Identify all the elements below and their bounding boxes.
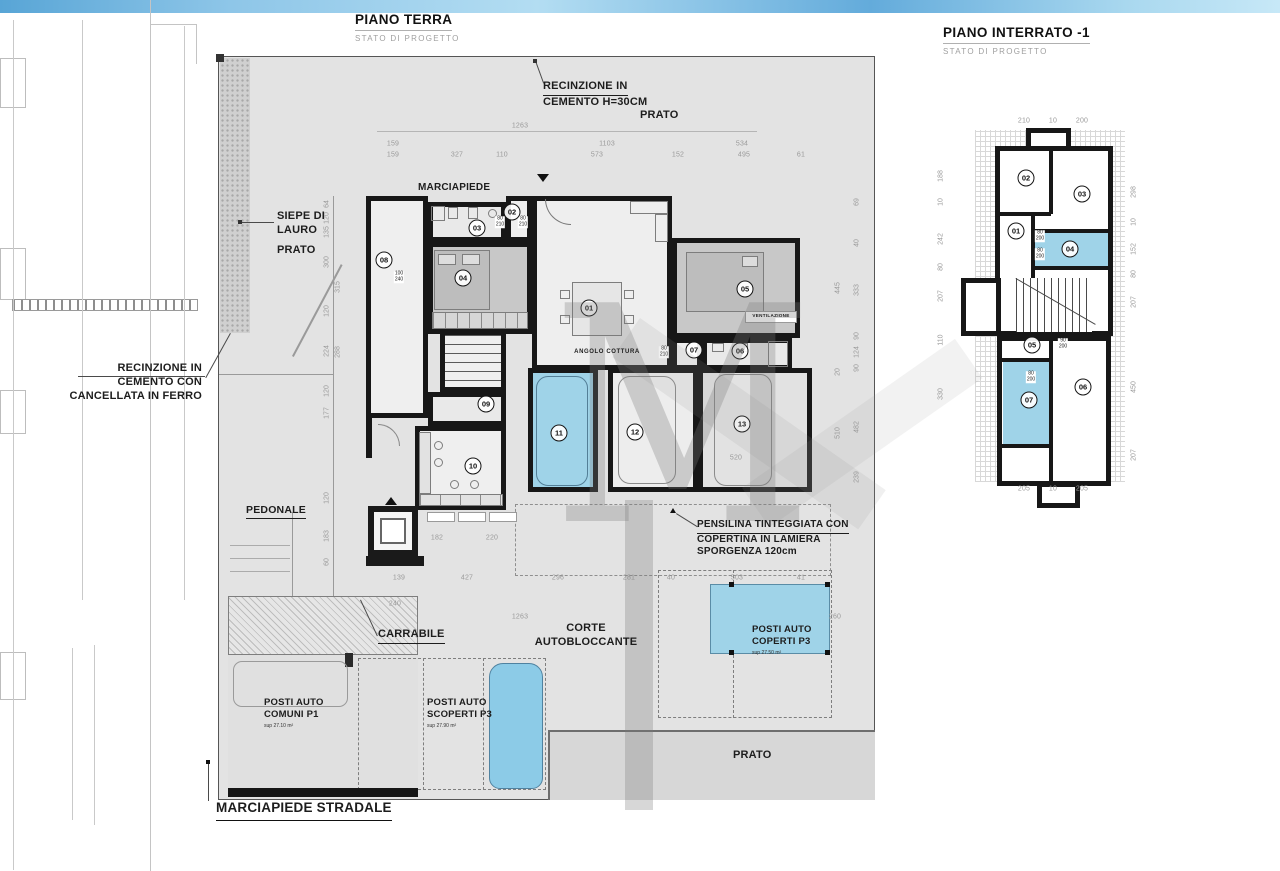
label-line: COPERTI P3 xyxy=(752,636,811,647)
dim-label: 240 xyxy=(389,601,401,608)
label-recinzione-left: RECINZIONE IN CEMENTO CON CANCELLATA IN … xyxy=(62,362,202,403)
room-number: 09 xyxy=(478,396,495,413)
dim-label: 120 xyxy=(324,385,331,397)
label-line: POSTI AUTO xyxy=(427,697,487,708)
label-line: CANCELLATA IN FERRO xyxy=(69,390,202,402)
floor-plan-sheet: { "titles": { "left": {"title": "PIANO T… xyxy=(0,0,1280,871)
room-number: 10 xyxy=(465,458,482,475)
room-number: 06 xyxy=(1075,379,1092,396)
chair xyxy=(624,290,634,299)
ground-floor-title-block: PIANO TERRA STATO DI PROGETTO xyxy=(355,11,460,43)
label-posti-scoperti: POSTI AUTO SCOPERTI P3 xyxy=(427,697,492,721)
room-08-area xyxy=(366,196,428,418)
dim-label: 188 xyxy=(938,170,945,182)
dim-label: 182 xyxy=(431,535,443,542)
dim-label: 60 xyxy=(324,558,331,566)
dim-label: 296 xyxy=(552,575,564,582)
dim-line xyxy=(377,131,757,132)
label-line: POSTI AUTO xyxy=(264,697,324,708)
dim-label: 503 xyxy=(731,575,743,582)
dim-label: 183 xyxy=(324,530,331,542)
walkway-step xyxy=(230,571,290,572)
label-line: CORTE xyxy=(566,622,606,634)
label-line: SCOPERTI P3 xyxy=(427,709,492,720)
wall-segment xyxy=(366,418,372,458)
room-number: 05 xyxy=(1024,337,1041,354)
bath-fixture xyxy=(712,343,724,352)
street-line xyxy=(94,645,95,825)
walkway-step xyxy=(230,545,290,546)
corner-marker xyxy=(825,650,830,655)
room-number: 03 xyxy=(469,220,486,237)
dim-label: 152 xyxy=(1131,243,1138,255)
basement-wall xyxy=(1049,150,1053,214)
dim-label: 205 xyxy=(1076,486,1088,493)
dim-label: 520 xyxy=(730,455,742,462)
dim-label: 534 xyxy=(736,141,748,148)
pillow xyxy=(462,254,480,265)
wardrobe xyxy=(432,312,528,329)
door-size-tag: 90 200 xyxy=(1058,338,1068,350)
label-pensilina: PENSILINA TINTEGGIATA CON COPERTINA IN L… xyxy=(697,519,849,559)
dim-label: 300 xyxy=(324,256,331,268)
label-marciapiede: MARCIAPIEDE xyxy=(418,182,490,195)
dim-label: 90 xyxy=(854,332,861,340)
dim-label: 110 xyxy=(938,334,945,345)
dim-label: 159 xyxy=(387,152,399,159)
label-carrabile: CARRABILE xyxy=(378,628,445,644)
room-number: 08 xyxy=(376,252,393,269)
dim-label: 315 xyxy=(335,281,342,293)
dim-label: 1263 xyxy=(512,614,528,621)
kitchen-counter xyxy=(419,494,503,506)
dim-label: 10 xyxy=(1131,218,1138,226)
label-line: COMUNI P1 xyxy=(264,709,319,720)
dim-label: 200 xyxy=(1076,118,1088,125)
north-arrow-icon xyxy=(537,174,549,182)
room-number: 02 xyxy=(1018,170,1035,187)
door-size-tag: 80 200 xyxy=(1035,248,1045,260)
bay-divider xyxy=(483,658,484,790)
dim-label: 210 xyxy=(1018,118,1030,125)
dim-label: 445 xyxy=(835,282,842,294)
dim-label: 242 xyxy=(938,233,945,245)
garden-fence-line xyxy=(333,196,334,600)
note-chip xyxy=(489,512,517,522)
corner-marker xyxy=(729,650,734,655)
dim-label: 205 xyxy=(1018,486,1030,493)
dim-label: 120 xyxy=(324,492,331,504)
label-line: AUTOBLOCCANTE xyxy=(535,636,638,648)
leader-line xyxy=(240,222,274,223)
dim-label: 110 xyxy=(496,152,508,159)
dim-label: 90 xyxy=(854,364,861,372)
street-sidewalk-bar xyxy=(228,788,418,797)
label-line: SPORGENZA 120cm xyxy=(697,546,797,557)
dim-label: 1263 xyxy=(512,123,528,130)
bath-fixture xyxy=(468,207,478,219)
corner-marker xyxy=(729,582,734,587)
dim-label: 40 xyxy=(854,239,861,247)
label-prato-left: PRATO xyxy=(277,244,316,258)
chair xyxy=(560,315,570,324)
sofa xyxy=(655,214,668,242)
dim-label: 152 xyxy=(672,152,684,159)
pillow xyxy=(742,256,758,267)
dim-label: 450 xyxy=(1131,381,1138,393)
label-line: PEDONALE xyxy=(246,504,306,519)
leader-line xyxy=(208,763,209,801)
label-line: LAURO xyxy=(277,224,317,236)
dim-label: 41 xyxy=(797,575,805,582)
page-subtitle: STATO DI PROGETTO xyxy=(355,34,460,43)
shower xyxy=(431,206,445,221)
door-size-tag: 80 200 xyxy=(1026,371,1036,383)
top-accent-bar xyxy=(0,0,1280,13)
shower xyxy=(768,341,788,367)
basement-wall xyxy=(1001,358,1051,362)
basement-wall xyxy=(999,212,1051,216)
note-chip xyxy=(458,512,486,522)
chair xyxy=(624,315,634,324)
label-prato-top: PRATO xyxy=(640,109,679,123)
stove-burner xyxy=(434,458,443,467)
room-number: 01 xyxy=(581,300,598,317)
dim-label: 224 xyxy=(324,345,331,357)
parcel-corner xyxy=(216,54,224,62)
street-line xyxy=(13,20,14,870)
room-number: 11 xyxy=(551,425,568,442)
dim-label: 120 xyxy=(324,305,331,317)
stove-burner xyxy=(450,480,459,489)
dim-label: 281 xyxy=(623,575,635,582)
label-posti-scoperti-sup: sup 27.90 m² xyxy=(427,723,456,729)
label-pedonale: PEDONALE xyxy=(246,504,306,519)
bay-divider xyxy=(423,658,424,790)
dim-label: 80 xyxy=(938,263,945,271)
label-line: CARRABILE xyxy=(378,628,445,644)
street-line xyxy=(150,24,197,25)
dim-label: 80 xyxy=(1131,270,1138,278)
dim-label: 207 xyxy=(938,290,945,302)
walkway-line xyxy=(292,512,293,600)
label-corte: CORTE AUTOBLOCCANTE xyxy=(535,622,638,650)
basement-left-bump xyxy=(961,278,1001,336)
label-line: COPERTINA IN LAMIERA xyxy=(697,534,821,545)
room-number: 01 xyxy=(1008,223,1025,240)
corner-marker xyxy=(825,582,830,587)
label-line: RECINZIONE IN xyxy=(118,362,203,374)
hedge-strip xyxy=(220,58,250,333)
walkway-step xyxy=(230,558,290,559)
dim-label: 124 xyxy=(854,346,861,358)
room-number: 06 xyxy=(732,343,749,360)
stove-burner xyxy=(470,480,479,489)
label-line: SIEPE DI xyxy=(277,210,325,222)
label-recinzione-top: RECINZIONE IN CEMENTO H=30CM xyxy=(543,80,647,110)
dim-label: 10 xyxy=(1049,118,1057,125)
dim-label: 495 xyxy=(738,152,750,159)
leader-dot xyxy=(206,760,210,764)
basement-subtitle: STATO DI PROGETTO xyxy=(943,47,1090,56)
label-siepe: SIEPE DI LAURO xyxy=(277,210,325,238)
dim-label: 10 xyxy=(938,198,945,206)
room-number: 03 xyxy=(1074,186,1091,203)
street-line xyxy=(82,20,83,600)
entry-canopy-inner xyxy=(380,518,406,544)
label-prato-bottom: PRATO xyxy=(733,749,772,763)
dim-label: 139 xyxy=(393,575,405,582)
bath-fixture xyxy=(448,207,458,219)
dim-label: 10 xyxy=(1049,486,1057,493)
label-marciapiede-stradale: MARCIAPIEDE STRADALE xyxy=(216,800,392,821)
label-posti-comuni-sup: sup 27.10 m² xyxy=(264,723,293,729)
dim-label: 220 xyxy=(486,535,498,542)
crosswalk-hatch xyxy=(12,299,198,311)
dim-label: 288 xyxy=(335,346,342,358)
dim-label: 61 xyxy=(797,152,805,159)
label-posti-coperti-sup: sup 27.50 m² xyxy=(752,650,781,656)
basement-title-block: PIANO INTERRATO -1 STATO DI PROGETTO xyxy=(943,24,1090,56)
basement-wall xyxy=(1033,266,1110,270)
dim-label: 298 xyxy=(1131,186,1138,198)
label-ventilazione: VENTILAZIONE xyxy=(752,313,789,319)
basement-bottom-stub xyxy=(1037,482,1080,508)
stove-burner xyxy=(434,441,443,450)
label-line: CEMENTO CON xyxy=(117,376,202,388)
dim-label: 20 xyxy=(835,368,842,376)
dim-label: 177 xyxy=(324,407,331,419)
leader-dot xyxy=(533,59,537,63)
label-line: RECINZIONE IN xyxy=(543,80,628,96)
leader-dot xyxy=(238,220,242,224)
door-size-tag: 80 200 xyxy=(1035,230,1045,242)
room-number: 02 xyxy=(504,204,521,221)
label-line: POSTI AUTO xyxy=(752,624,812,635)
room-number: 04 xyxy=(1062,241,1079,258)
room-number: 04 xyxy=(455,270,472,287)
dim-label: 1103 xyxy=(599,141,615,148)
kitchen-counter xyxy=(419,432,431,494)
dim-label: 69 xyxy=(854,198,861,206)
label-line: CEMENTO H=30CM xyxy=(543,96,647,108)
label-line: PENSILINA TINTEGGIATA CON xyxy=(697,519,849,534)
note-chip xyxy=(427,512,455,522)
garden-fence-line xyxy=(219,374,333,375)
stairwell xyxy=(440,330,506,392)
dim-label: 159 xyxy=(387,141,399,148)
dim-label: 573 xyxy=(591,152,603,159)
dim-label: 207 xyxy=(1131,449,1138,461)
room-number: 12 xyxy=(627,424,644,441)
door-size-tag: 80 210 xyxy=(518,216,528,228)
street-line xyxy=(150,0,151,871)
basement-wall xyxy=(1001,444,1051,448)
door-size-tag: 100 240 xyxy=(394,271,404,283)
label-posti-comuni: POSTI AUTO COMUNI P1 xyxy=(264,697,324,721)
pillow xyxy=(438,254,456,265)
room-number: 05 xyxy=(737,281,754,298)
grass-strip-bottom xyxy=(548,730,875,800)
dim-label: 427 xyxy=(461,575,473,582)
dim-label: 333 xyxy=(854,284,861,296)
street-line xyxy=(184,26,185,600)
label-angolo-cottura: ANGOLO COTTURA xyxy=(574,349,640,357)
dim-label: 327 xyxy=(451,152,463,159)
street-line xyxy=(196,24,197,64)
door-size-tag: 80 210 xyxy=(495,216,505,228)
room-09-laundry xyxy=(428,392,506,426)
sofa xyxy=(630,201,668,214)
room-number: 07 xyxy=(1021,392,1038,409)
street-line xyxy=(72,648,73,820)
canopy-base-bar xyxy=(366,556,424,566)
dim-label: 260 xyxy=(829,614,841,621)
dim-label: 64 xyxy=(324,200,331,208)
dim-label: 207 xyxy=(1131,296,1138,308)
page-title: PIANO TERRA xyxy=(355,12,452,31)
blue-car xyxy=(489,663,543,789)
leader-arrow xyxy=(670,508,676,513)
basement-title: PIANO INTERRATO -1 xyxy=(943,25,1090,44)
entry-arrow-icon xyxy=(385,497,397,505)
dim-label: 40 xyxy=(667,575,675,582)
chair xyxy=(560,290,570,299)
label-posti-coperti: POSTI AUTO COPERTI P3 xyxy=(752,624,812,648)
